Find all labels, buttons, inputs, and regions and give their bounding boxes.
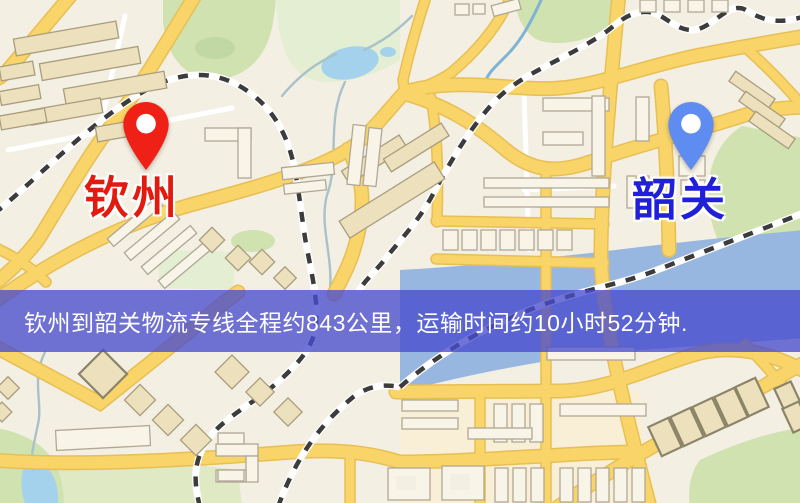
route-info-text: 钦州到韶关物流专线全程约843公里，运输时间约10小时52分钟.: [0, 304, 688, 338]
origin-pin-marker[interactable]: [123, 102, 169, 170]
route-info-banner: 钦州到韶关物流专线全程约843公里，运输时间约10小时52分钟.: [0, 290, 800, 352]
park-grove: [195, 37, 235, 59]
destination-pin-marker[interactable]: [668, 102, 714, 170]
map-pin-icon: [123, 102, 169, 170]
map-pin-icon: [668, 102, 714, 170]
pond: [380, 47, 396, 57]
destination-city-label: 韶关: [632, 177, 728, 222]
map-canvas[interactable]: [0, 0, 800, 503]
map-screenshot: 钦州 韶关 钦州到韶关物流专线全程约843公里，运输时间约10小时52分钟.: [0, 0, 800, 503]
origin-city-label: 钦州: [84, 175, 180, 220]
